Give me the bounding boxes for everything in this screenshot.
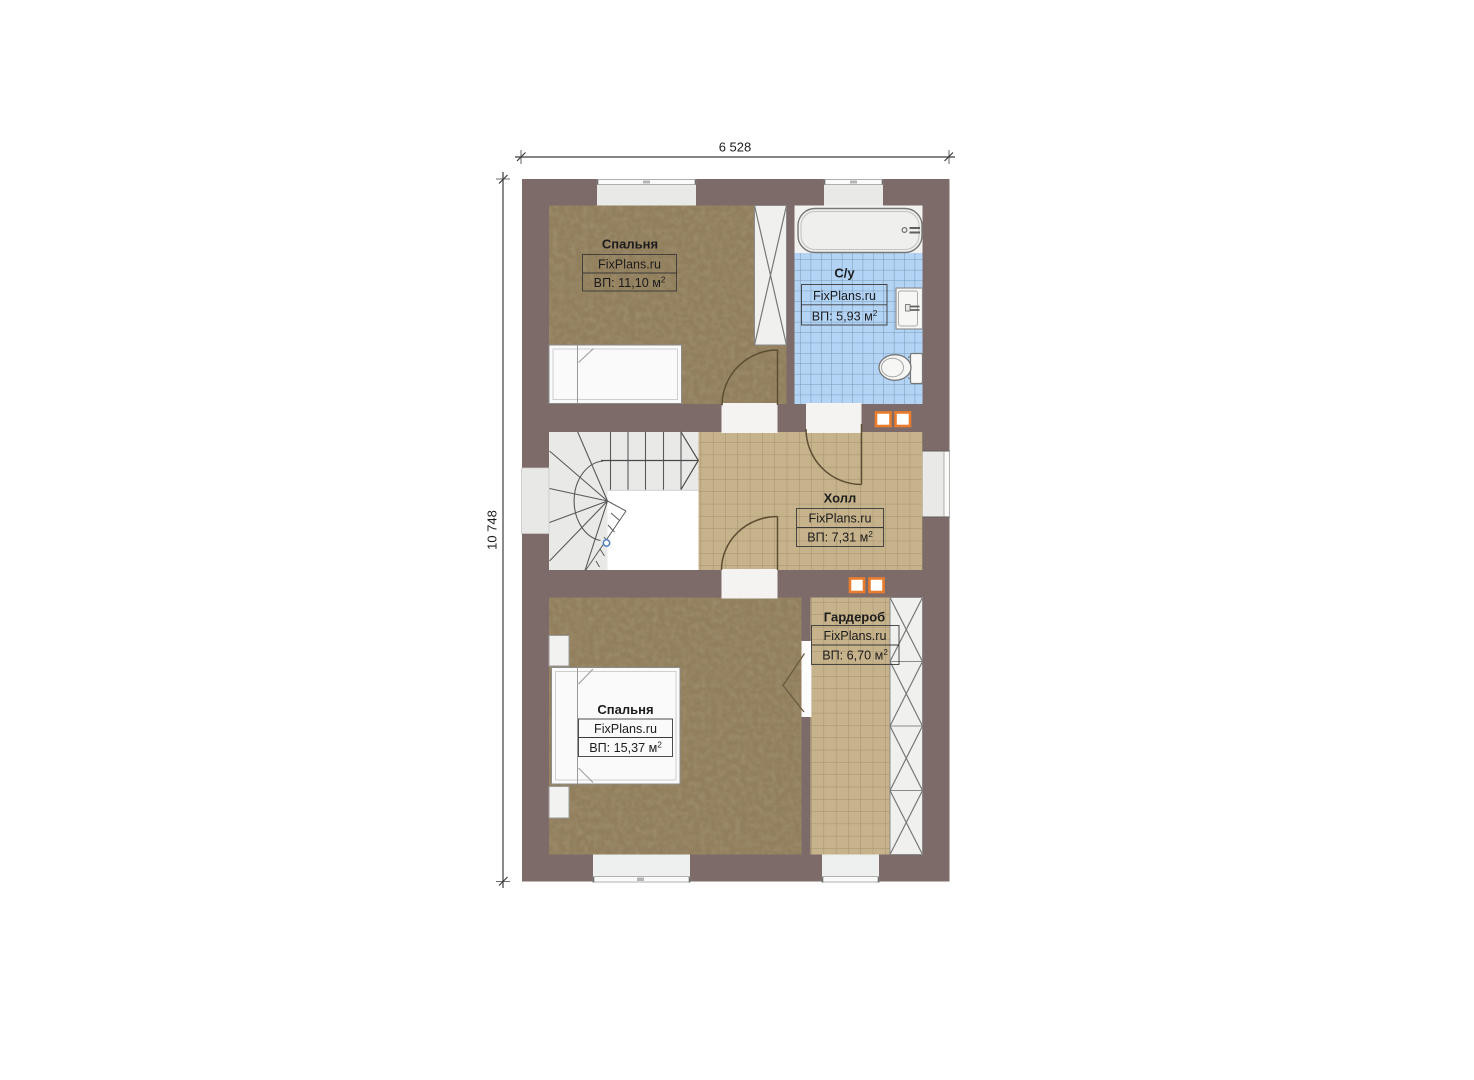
svg-text:10 748: 10 748 bbox=[485, 510, 500, 550]
svg-text:FixPlans.ru: FixPlans.ru bbox=[824, 629, 887, 643]
svg-text:С/у: С/у bbox=[834, 266, 855, 281]
svg-text:Холл: Холл bbox=[824, 491, 857, 506]
svg-text:Спальня: Спальня bbox=[597, 702, 653, 717]
svg-text:ВП: 11,10 м2: ВП: 11,10 м2 bbox=[594, 276, 666, 291]
svg-text:ВП: 5,93 м2: ВП: 5,93 м2 bbox=[812, 309, 878, 324]
svg-text:FixPlans.ru: FixPlans.ru bbox=[809, 512, 872, 526]
svg-text:Спальня: Спальня bbox=[602, 237, 658, 252]
svg-text:FixPlans.ru: FixPlans.ru bbox=[813, 289, 876, 303]
svg-text:6 528: 6 528 bbox=[719, 140, 752, 155]
svg-text:ВП: 6,70 м2: ВП: 6,70 м2 bbox=[822, 648, 888, 663]
svg-text:ВП: 7,31 м2: ВП: 7,31 м2 bbox=[807, 530, 873, 545]
svg-text:ВП: 15,37 м2: ВП: 15,37 м2 bbox=[589, 741, 662, 756]
svg-text:Гардероб: Гардероб bbox=[824, 610, 885, 625]
svg-text:FixPlans.ru: FixPlans.ru bbox=[594, 722, 657, 736]
svg-text:FixPlans.ru: FixPlans.ru bbox=[598, 258, 661, 272]
